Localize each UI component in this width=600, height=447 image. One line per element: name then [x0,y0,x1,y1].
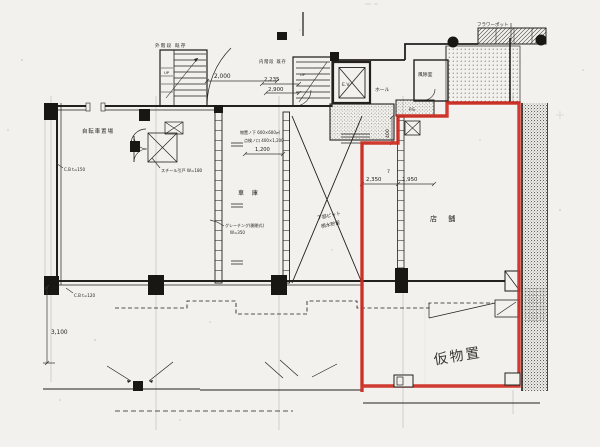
label-stair-left: 外階段 既存 [155,42,187,49]
wall-bicycle-garage [215,112,222,283]
entry-porch-tile [446,46,520,102]
label-windbreak: 風除室 [418,71,433,78]
label-pipe-shaft: P.S [409,107,415,112]
label-hall: ホール [375,87,390,93]
dim-2350: 2,350 [366,177,382,183]
dim-1200: 1,200 [255,147,270,153]
scanned-floor-plan-page: フラワーポット 外階段 既存 内階段 既存 UP UP E.V ホール 風除室 … [0,0,600,447]
neighbor-building-strip [522,103,548,391]
dim-1950: 1,950 [402,177,418,183]
wall-garage-pit [283,112,290,283]
dim-7: 7 [387,169,390,175]
dim-2900: 2,900 [268,87,284,93]
label-garage: 車 庫 [238,189,261,197]
service-room-tiled [330,104,394,140]
label-up-right: UP [300,72,306,77]
label-shop: 店 舗 [430,214,460,223]
note-grating-2: W=350 [230,230,245,235]
floor-plan-svg: フラワーポット 外階段 既存 内階段 既存 UP UP E.V ホール 風除室 … [0,0,600,447]
note-grating-1: グレーチング(開閉式) [225,222,265,228]
label-bicycle-room: 自転車置場 [82,127,114,135]
pipe-shaft-box [396,100,434,116]
dim-400: 400 [385,129,391,138]
label-elevator: E.V [342,82,350,88]
note-cb120: C.B t=120 [74,293,96,298]
neighbor-strip-grid [524,288,546,322]
dim-2235: 2,235 [264,77,279,83]
label-stair-right: 内階段 既存 [259,58,287,65]
dim-3100: 3,100 [51,330,68,336]
note-cb150: C.B t=150 [64,167,86,172]
note-under-storage: 物置ノ下 600×600㎡ [240,129,280,135]
label-up-left: UP [164,70,170,75]
note-steel-door: スチール引戸 W=180 [161,167,203,173]
dim-2000: 2,000 [214,74,231,80]
label-flower-pot: フラワーポット [477,21,509,28]
note-hatch-opening: 点検ノ口 400×1,200 [244,137,284,143]
